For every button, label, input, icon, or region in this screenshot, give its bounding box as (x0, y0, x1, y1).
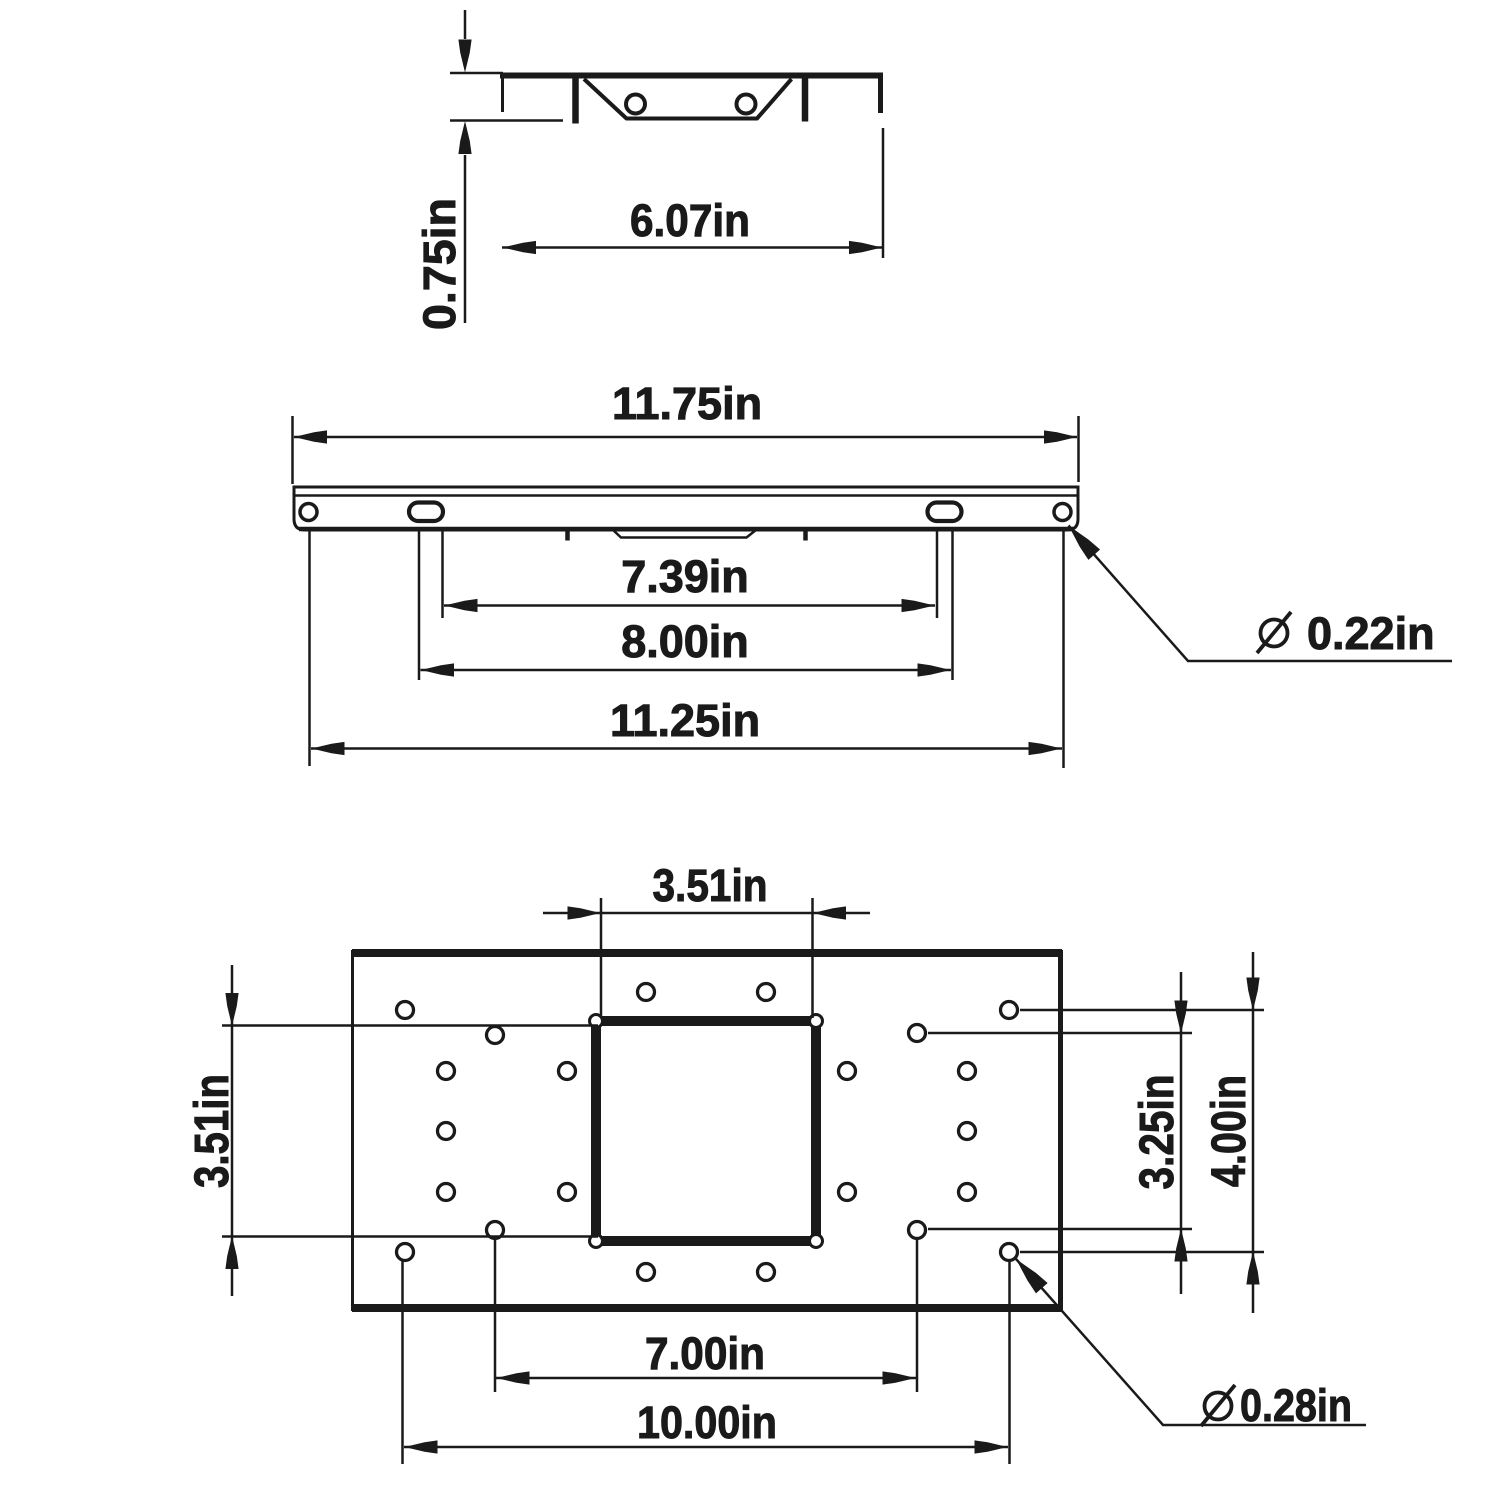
svg-text:4.00in: 4.00in (1203, 1075, 1256, 1187)
svg-text:3.51in: 3.51in (186, 1074, 239, 1188)
svg-text:6.07in: 6.07in (630, 195, 750, 246)
svg-text:7.00in: 7.00in (645, 1328, 765, 1379)
svg-text:11.75in: 11.75in (612, 378, 762, 429)
svg-text:10.00in: 10.00in (637, 1397, 777, 1448)
svg-text:8.00in: 8.00in (621, 616, 749, 667)
svg-text:11.25in: 11.25in (610, 695, 760, 746)
svg-text:3.51in: 3.51in (653, 860, 768, 911)
svg-text:3.25in: 3.25in (1131, 1075, 1184, 1190)
svg-text:7.39in: 7.39in (621, 551, 749, 602)
svg-text:0.75in: 0.75in (414, 198, 465, 330)
svg-text:0.22in: 0.22in (1307, 608, 1435, 659)
svg-text:0.28in: 0.28in (1240, 1380, 1352, 1431)
